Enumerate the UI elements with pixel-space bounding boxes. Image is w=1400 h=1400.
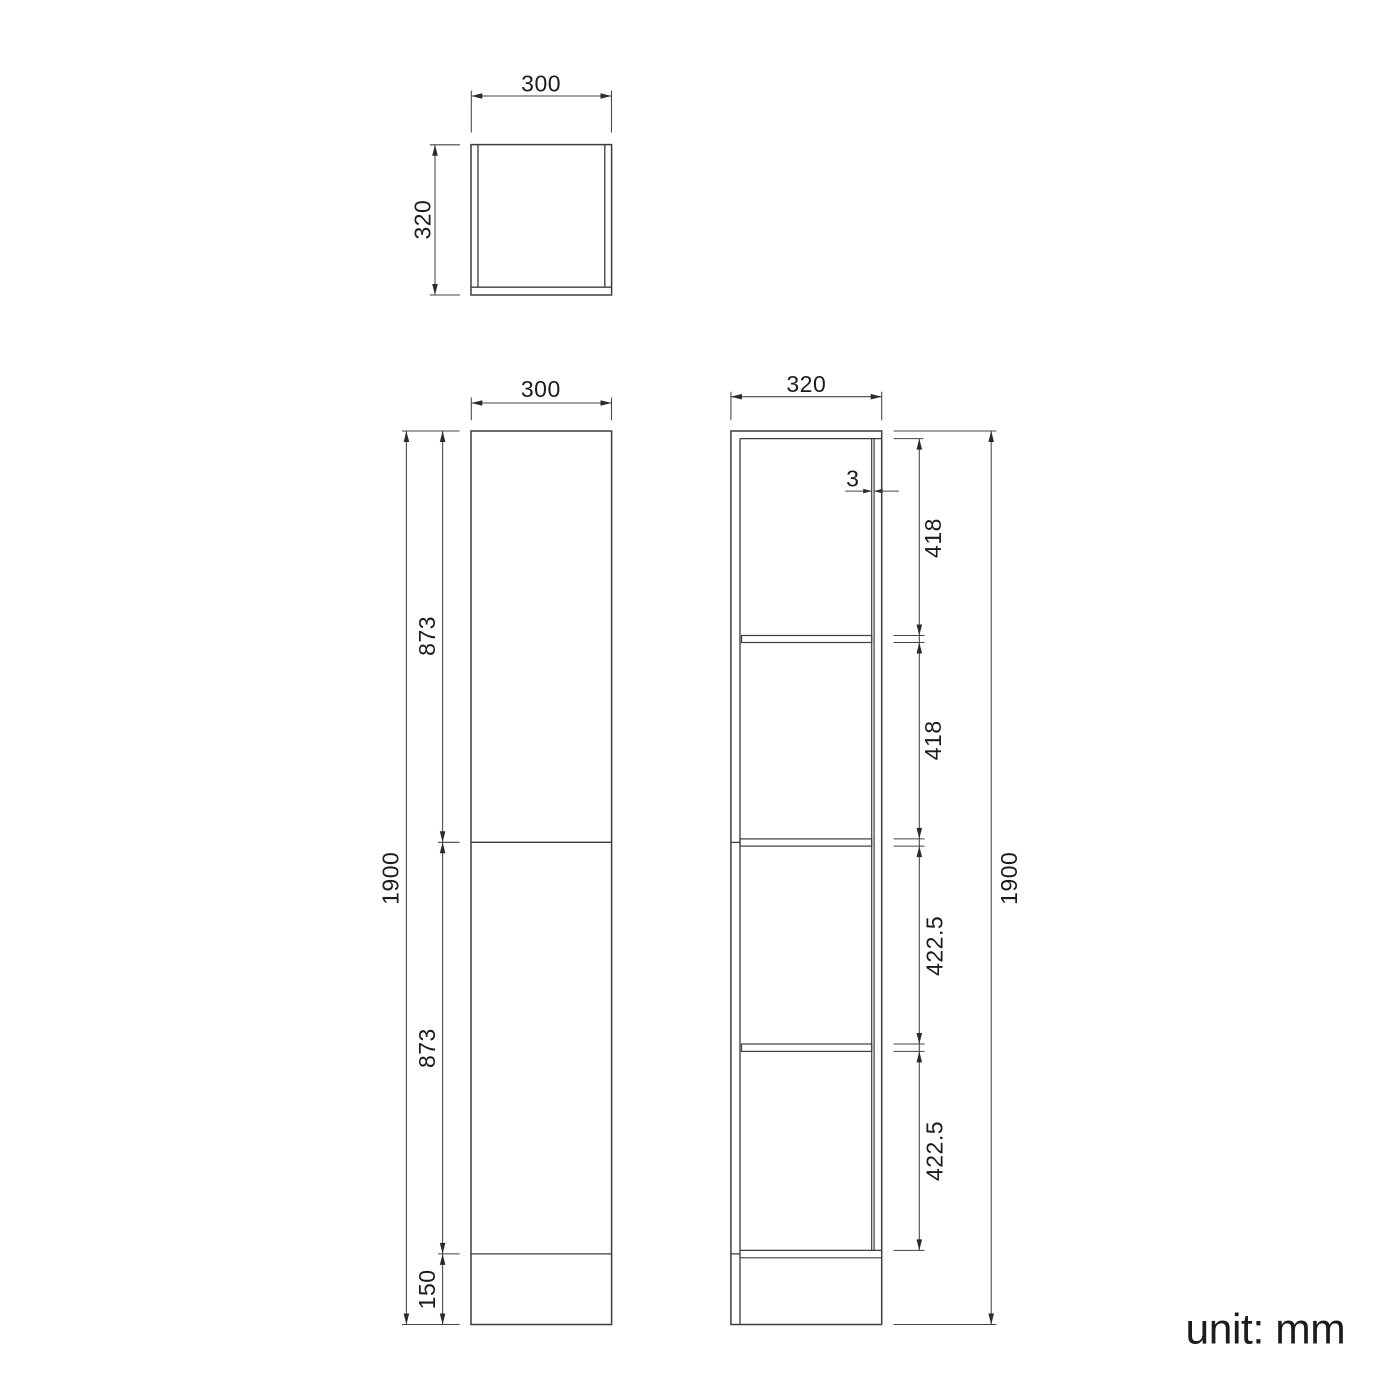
svg-text:873: 873 (414, 1028, 440, 1068)
svg-text:3: 3 (846, 466, 859, 492)
svg-text:422.5: 422.5 (922, 1121, 948, 1181)
svg-text:300: 300 (521, 376, 561, 402)
svg-text:422.5: 422.5 (922, 916, 948, 976)
svg-text:320: 320 (786, 371, 826, 397)
svg-text:320: 320 (409, 200, 435, 240)
svg-text:873: 873 (414, 616, 440, 656)
svg-text:418: 418 (920, 518, 946, 558)
svg-text:418: 418 (920, 720, 946, 760)
svg-text:unit: mm: unit: mm (1186, 1306, 1346, 1353)
svg-text:1900: 1900 (378, 852, 404, 905)
svg-text:1900: 1900 (996, 852, 1022, 905)
svg-text:150: 150 (414, 1269, 440, 1309)
svg-text:300: 300 (521, 70, 561, 96)
